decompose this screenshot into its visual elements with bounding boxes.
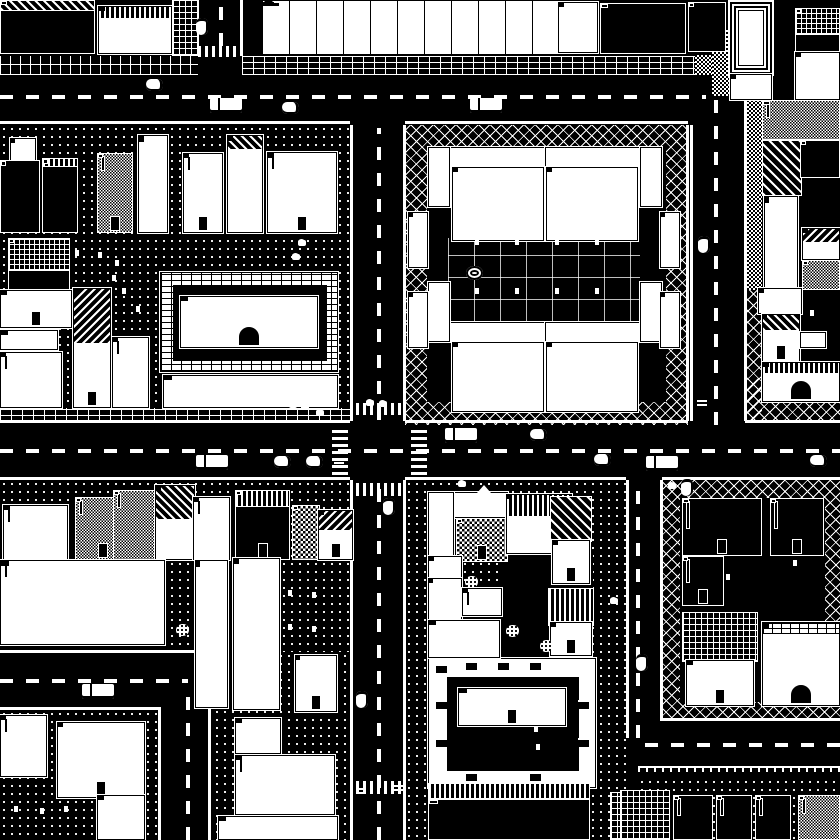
building	[295, 655, 337, 712]
building	[112, 337, 149, 408]
pedestrian	[458, 480, 466, 493]
window-grid	[181, 297, 192, 303]
building	[688, 2, 726, 52]
truck	[196, 455, 228, 470]
window-grid	[409, 213, 415, 220]
window-grid	[99, 7, 108, 14]
building	[770, 498, 824, 556]
window-grid	[463, 589, 470, 595]
window-grid	[553, 541, 560, 548]
window-grid	[661, 213, 667, 220]
window-grid	[674, 796, 682, 802]
door	[566, 567, 576, 582]
window-grid	[9, 239, 17, 245]
building	[8, 238, 70, 290]
road-curb	[158, 707, 161, 840]
building	[195, 560, 228, 708]
window	[453, 168, 458, 172]
road-center-dash	[714, 97, 718, 425]
building	[795, 52, 840, 100]
pedestrian	[668, 482, 676, 495]
window	[601, 4, 608, 8]
pedestrian	[366, 399, 374, 412]
building	[452, 342, 544, 412]
building	[730, 74, 772, 100]
window	[98, 154, 103, 158]
window-grid	[731, 75, 738, 81]
window	[228, 136, 233, 141]
tree	[312, 592, 334, 619]
building	[428, 799, 590, 840]
car	[146, 79, 163, 91]
road-curb	[403, 125, 406, 421]
building-sign	[775, 502, 777, 528]
window	[156, 486, 161, 490]
window-grid	[1, 716, 8, 723]
window	[293, 506, 298, 510]
window	[164, 376, 172, 380]
bush	[176, 624, 189, 636]
pedestrian	[289, 401, 297, 414]
building	[802, 260, 840, 290]
building	[550, 622, 592, 656]
window-grid	[194, 498, 201, 504]
road-curb	[0, 707, 160, 710]
window-grid	[184, 154, 192, 161]
window-grid	[763, 101, 773, 107]
door	[790, 380, 812, 400]
building	[233, 558, 280, 710]
building	[795, 8, 840, 52]
person-body	[298, 240, 306, 246]
window-grid	[293, 506, 300, 513]
tree-trunk	[810, 310, 814, 316]
building	[97, 153, 133, 233]
tree-trunk	[14, 806, 18, 812]
roof-vstripe	[99, 7, 171, 19]
window-grid	[1, 291, 10, 297]
window-grid	[268, 153, 277, 161]
road-curb	[638, 766, 840, 772]
building	[180, 296, 318, 348]
window-grid	[756, 796, 764, 802]
window-grid	[76, 498, 84, 505]
roof-hatch	[1, 1, 94, 11]
car	[274, 456, 291, 468]
road-grate-icon	[394, 783, 404, 791]
window-grid	[263, 1, 279, 8]
window	[181, 297, 188, 301]
window	[507, 495, 512, 499]
window-grid	[689, 3, 696, 10]
door	[717, 539, 727, 554]
tree	[595, 288, 617, 315]
roof-vstripe	[763, 363, 839, 374]
building	[452, 167, 544, 241]
pedestrian	[379, 400, 387, 413]
ground-tilesg	[0, 56, 198, 75]
car	[383, 498, 395, 515]
window-grid	[1, 1, 10, 8]
window	[661, 213, 665, 217]
road-curb	[405, 121, 688, 124]
window	[58, 723, 63, 727]
building	[0, 290, 72, 328]
roof-tiles	[9, 239, 69, 271]
tree-trunk	[288, 624, 292, 630]
building	[428, 620, 500, 658]
umbrella	[477, 479, 491, 493]
car	[636, 654, 648, 671]
tree	[475, 239, 497, 266]
window-grid	[803, 229, 810, 235]
road-grate-icon	[334, 460, 344, 468]
building	[218, 816, 338, 840]
chimney	[466, 661, 477, 670]
roof-plate	[428, 282, 450, 342]
tree-trunk	[595, 239, 599, 245]
door	[507, 709, 517, 724]
window	[683, 499, 689, 503]
window	[4, 506, 10, 510]
roof-plate	[640, 147, 662, 207]
window-grid	[763, 363, 772, 369]
tree-trunk	[98, 252, 102, 258]
window-grid	[683, 557, 690, 563]
road-center-dash	[645, 743, 840, 747]
window	[194, 498, 199, 502]
window-grid	[1, 161, 8, 169]
window	[689, 3, 694, 7]
window	[98, 796, 104, 800]
tree-trunk	[595, 288, 599, 294]
window-grid	[459, 689, 471, 696]
window	[453, 343, 458, 347]
building	[673, 795, 713, 840]
door	[790, 684, 812, 704]
pedestrian	[610, 597, 618, 610]
window	[1, 353, 6, 357]
building	[762, 362, 840, 402]
window-grid	[507, 495, 515, 502]
window	[459, 689, 467, 693]
tree-trunk	[40, 808, 44, 814]
person-body	[289, 402, 297, 408]
car	[356, 691, 368, 708]
building	[716, 795, 752, 840]
tree-trunk	[475, 288, 479, 294]
window	[1, 331, 8, 335]
building	[800, 140, 840, 178]
window-grid	[547, 343, 555, 350]
window-grid	[74, 289, 82, 297]
window	[1, 716, 6, 720]
building	[682, 556, 724, 606]
road-center-dash	[186, 686, 190, 840]
pedestrian	[301, 403, 309, 416]
chimney	[578, 700, 589, 709]
tree	[793, 560, 815, 587]
building	[235, 718, 281, 754]
road-curb	[0, 121, 350, 124]
window	[236, 756, 242, 760]
car	[530, 429, 547, 441]
window	[731, 75, 736, 79]
window-grid	[453, 168, 461, 175]
window-grid	[236, 491, 244, 498]
building	[57, 722, 145, 798]
door	[792, 539, 802, 554]
road-curb	[0, 650, 210, 653]
building	[73, 288, 111, 408]
window-grid	[114, 491, 122, 498]
window	[196, 561, 200, 567]
car	[196, 18, 208, 35]
tree	[14, 806, 36, 833]
building	[0, 0, 95, 54]
chimney	[578, 738, 589, 747]
truck	[445, 428, 477, 443]
window	[236, 491, 241, 495]
window	[803, 229, 808, 233]
road-curb	[405, 420, 688, 423]
building	[163, 375, 338, 408]
tree-trunk	[536, 744, 540, 750]
building	[798, 795, 840, 840]
door	[98, 543, 108, 558]
window-grid	[551, 623, 558, 629]
car	[698, 236, 710, 253]
window-grid	[803, 261, 810, 267]
building	[292, 505, 320, 560]
building	[620, 790, 670, 840]
chimney	[530, 772, 541, 781]
window-grid	[58, 723, 66, 730]
door	[31, 311, 41, 326]
window	[661, 293, 665, 297]
tree-trunk	[312, 592, 316, 598]
window	[756, 796, 761, 800]
building	[97, 795, 145, 840]
truck	[646, 456, 678, 471]
window-grid	[601, 4, 611, 11]
window-grid	[547, 168, 555, 175]
road-curb	[626, 480, 629, 738]
chimney	[530, 661, 541, 670]
tree-trunk	[726, 574, 730, 580]
door	[331, 543, 341, 558]
window	[99, 7, 105, 11]
building	[428, 783, 590, 799]
window-grid	[113, 338, 121, 345]
building	[764, 196, 798, 288]
building	[0, 352, 62, 408]
door	[96, 781, 106, 796]
building	[235, 490, 290, 560]
tree	[810, 310, 832, 337]
window-grid	[759, 289, 767, 295]
window	[1, 291, 7, 295]
window-grid	[796, 53, 804, 60]
window-grid	[717, 796, 725, 802]
window	[553, 541, 558, 545]
ground-bricks	[242, 56, 712, 75]
chimney	[436, 700, 447, 709]
crosswalk	[356, 483, 404, 496]
window	[268, 153, 274, 158]
tree	[536, 744, 558, 771]
window	[463, 589, 468, 593]
building	[42, 158, 78, 233]
door	[258, 543, 268, 558]
window	[113, 338, 118, 342]
window	[234, 559, 239, 564]
car	[282, 102, 299, 114]
tree	[555, 239, 577, 266]
window-grid	[799, 796, 807, 802]
fountain	[466, 266, 483, 280]
window	[683, 557, 688, 561]
window	[1, 161, 6, 166]
window-grid	[763, 315, 769, 322]
door	[110, 216, 120, 231]
tree	[75, 250, 97, 277]
tree-trunk	[312, 626, 316, 632]
tree	[288, 590, 310, 617]
building-sign	[687, 560, 689, 582]
building	[762, 314, 800, 362]
window	[429, 557, 434, 561]
road-center-dash	[219, 0, 223, 46]
person-body	[88, 633, 96, 639]
tree	[136, 306, 158, 333]
road-center-dash	[0, 679, 188, 683]
window-grid	[457, 519, 464, 525]
window	[765, 197, 769, 203]
pedestrian	[298, 239, 306, 252]
building	[682, 498, 762, 556]
roof-hatch2	[74, 289, 110, 344]
door	[297, 216, 307, 231]
city-map-screenshot	[0, 0, 840, 840]
window	[139, 136, 144, 142]
bush	[465, 576, 478, 588]
building	[758, 288, 802, 314]
window-grid	[219, 817, 229, 823]
window	[759, 289, 764, 293]
door	[311, 695, 321, 710]
window	[74, 289, 79, 294]
window	[717, 796, 722, 800]
pedestrian	[316, 409, 324, 422]
building	[262, 0, 560, 55]
building	[682, 612, 758, 662]
person-body	[610, 598, 618, 604]
window	[796, 53, 801, 57]
tree	[312, 626, 334, 653]
building	[318, 510, 353, 560]
window-grid	[319, 511, 326, 517]
building	[550, 496, 592, 542]
tree-trunk	[64, 806, 68, 812]
window-grid	[234, 559, 241, 567]
road-grate-icon	[356, 786, 366, 794]
building	[0, 160, 40, 233]
bush	[506, 625, 519, 637]
building	[600, 3, 686, 54]
building	[762, 622, 840, 706]
window	[76, 498, 81, 502]
tree-trunk	[75, 250, 79, 256]
building	[546, 167, 638, 241]
tree-trunk	[515, 239, 519, 245]
person-body	[301, 404, 309, 410]
pedestrian	[72, 630, 80, 643]
car	[594, 454, 611, 466]
building	[686, 660, 754, 706]
road-center-dash	[377, 128, 381, 420]
window	[801, 141, 806, 145]
road-center-dash	[0, 95, 706, 99]
roof-brickw	[763, 623, 839, 635]
building	[660, 212, 680, 268]
road-curb	[744, 98, 747, 421]
building-sign	[687, 502, 689, 528]
building	[183, 153, 223, 233]
window	[114, 491, 119, 495]
window	[796, 9, 801, 13]
door	[198, 216, 208, 231]
window-grid	[429, 557, 437, 563]
building	[0, 330, 58, 350]
person-body	[292, 254, 300, 260]
window	[9, 239, 14, 243]
truck	[210, 98, 242, 113]
building	[98, 6, 172, 54]
building	[456, 518, 508, 562]
window-grid	[683, 499, 692, 505]
window-grid	[156, 486, 164, 493]
road-curb	[686, 125, 689, 421]
window-grid	[453, 343, 461, 350]
roof-plate	[640, 282, 662, 342]
building	[10, 138, 36, 162]
window-grid	[661, 293, 667, 300]
building	[802, 228, 840, 260]
road-center-dash	[636, 480, 640, 738]
road-curb	[240, 0, 243, 56]
window-grid	[559, 3, 566, 10]
car	[681, 479, 693, 496]
window	[263, 1, 274, 5]
window	[409, 293, 413, 297]
tree-trunk	[112, 275, 116, 281]
building	[155, 485, 195, 560]
window-grid	[228, 136, 235, 144]
window	[674, 796, 679, 800]
window-grid	[1, 561, 13, 569]
window-grid	[4, 506, 13, 513]
building	[548, 588, 594, 626]
pedestrian	[292, 253, 300, 266]
tree	[515, 239, 537, 266]
building	[546, 342, 638, 412]
door	[87, 391, 97, 406]
window-grid	[763, 623, 772, 631]
building	[558, 2, 598, 53]
door	[715, 689, 725, 704]
tree-trunk	[793, 560, 797, 566]
